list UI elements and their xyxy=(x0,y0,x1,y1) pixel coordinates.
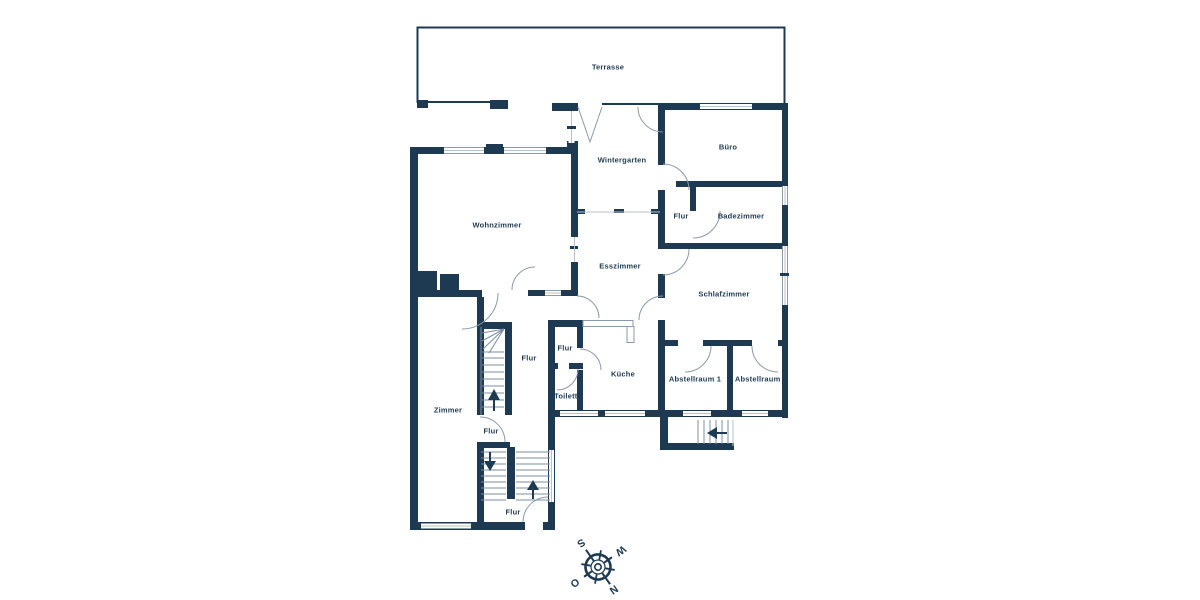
compass-south-label: S xyxy=(575,536,588,550)
room-label-badezimmer: Badezimmer xyxy=(718,212,765,221)
room-label-flur-small: Flur xyxy=(558,344,573,353)
room-label-esszimmer: Esszimmer xyxy=(599,262,640,271)
kitchen-counter-side xyxy=(627,327,634,343)
room-label-terrasse: Terrasse xyxy=(592,63,624,72)
stairs-main xyxy=(481,327,504,415)
arrow-down-lower-stair xyxy=(484,452,496,471)
stairs-lower xyxy=(481,452,550,500)
compass-hub xyxy=(594,563,603,572)
room-label-abstellraum-1: Abstellraum 1 xyxy=(669,375,721,384)
room-label-wohnzimmer: Wohnzimmer xyxy=(473,221,522,230)
compass-outer-ring xyxy=(581,550,616,585)
room-label-zimmer: Zimmer xyxy=(434,406,462,415)
folding-door-symbol xyxy=(578,107,602,142)
arrow-up-lower-stair xyxy=(527,480,539,499)
floorplan-canvas: N O S W Terrasse Wintergarten Büro Wohnz… xyxy=(0,0,1200,600)
floorplan-svg: N O S W xyxy=(0,0,1200,600)
room-label-toilette: Toilette xyxy=(554,392,582,401)
compass-rose: N O S W xyxy=(551,519,644,600)
room-label-flur-stairs: Flur xyxy=(522,354,537,363)
room-label-flur-og: Flur xyxy=(674,212,689,221)
kitchen-counter xyxy=(583,321,633,327)
room-label-flur-bottom: Flur xyxy=(506,508,521,517)
compass-west-label: W xyxy=(613,543,628,559)
room-label-wintergarten: Wintergarten xyxy=(598,156,647,165)
room-label-buero: Büro xyxy=(719,143,737,152)
compass-inner-ring xyxy=(588,557,607,576)
room-label-schlafzimmer: Schlafzimmer xyxy=(698,290,749,299)
arrow-up-main-stair xyxy=(488,389,500,411)
room-label-abstellraum-2: Abstellraum 2 xyxy=(735,375,787,384)
windows xyxy=(421,104,789,529)
compass-east-label: O xyxy=(568,575,582,590)
room-label-flur-mid: Flur xyxy=(484,427,499,436)
room-label-kueche: Küche xyxy=(611,370,635,379)
